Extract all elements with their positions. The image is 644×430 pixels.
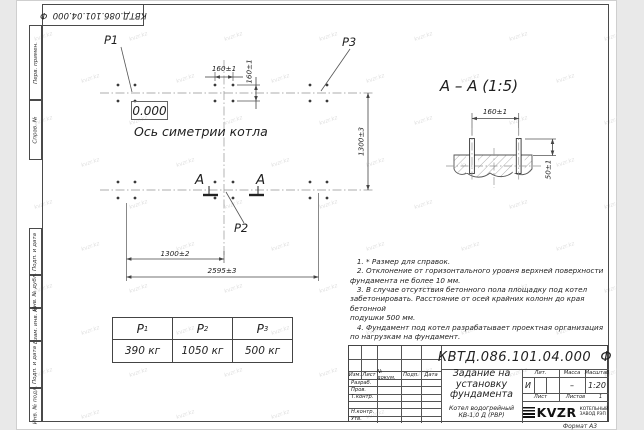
loads-table-value: 1050 кг [173, 340, 232, 362]
tb-mass-label: Масса [559, 369, 585, 377]
margin-label: Подп. и дата [33, 232, 39, 270]
dim-total-span: 2595±3 [200, 266, 244, 275]
margin-label: Взам. инв. № [33, 306, 39, 344]
margin-label: Инв. № дубл. [33, 272, 39, 310]
dim-bolt-pitch-y: 160±1 [245, 49, 254, 93]
elevation-mark: 0.000 [131, 101, 168, 120]
kvzr-logo-icon [523, 407, 535, 418]
margin-label: Подп. и дата [33, 345, 39, 383]
title-block: Изм. Лист № докум. Подп. Дата Разраб. Пр… [348, 345, 608, 422]
tb-doc-number: КВТД.086.101.04.000 Ф [441, 346, 609, 369]
load-point-label-p1: P1 [104, 33, 118, 47]
loads-table-header: P3 [233, 318, 292, 340]
tb-lit-value: И [522, 377, 534, 393]
loads-table-value: 390 кг [113, 340, 172, 362]
load-point-label-p2: P2 [234, 221, 248, 235]
tb-row-razrab: Разраб. [349, 379, 377, 386]
tb-sheets-label: Листов [566, 394, 585, 400]
dim-rows-span: 1300±3 [357, 119, 366, 163]
tb-header-list: Лист [361, 371, 377, 379]
tb-row-tkontr: Т.контр. [349, 394, 377, 401]
section-letter-right: А [256, 172, 265, 188]
corner-stamp-number: КВТД.086.101.04.000 Ф [40, 10, 147, 20]
tb-scale-label: Масштаб [585, 369, 609, 377]
dim-bolt-pitch-x: 160±1 [202, 64, 246, 73]
margin-box-podp-data-1: Подп. и дата [29, 228, 42, 275]
loads-table-header: P2 [173, 318, 232, 340]
company-name: КОТЕЛЬНЫЙ ЗАВОД РЭП [580, 407, 609, 418]
load-point-label-p3: P3 [342, 35, 356, 49]
dim-section-protrusion: 50±1 [544, 147, 553, 191]
tb-row-blank [349, 401, 377, 408]
tb-scale-value: 1:20 [585, 377, 609, 393]
tb-row-prov: Пров. [349, 386, 377, 393]
margin-label: Инв. № подл. [33, 386, 39, 425]
tb-sheets-value: 1 [599, 394, 602, 400]
section-letter-left: А [195, 172, 204, 188]
tb-sheets-cell: Листов 1 [559, 393, 609, 401]
dim-half-span: 1300±2 [153, 249, 197, 258]
loads-table: P1 390 кг P2 1050 кг P3 500 кг [112, 317, 293, 363]
tb-product-name: Котел водогрейный КВ-1,0 Д (РВР) [441, 401, 522, 423]
loads-table-value: 500 кг [233, 340, 292, 362]
corner-stamp: КВТД.086.101.04.000 Ф [42, 4, 144, 26]
format-note: Формат А3 [540, 423, 620, 430]
loads-table-col: P3 500 кг [233, 318, 292, 362]
margin-box-perv-primen: Перв. примен. [29, 25, 42, 100]
loads-table-col: P2 1050 кг [173, 318, 233, 362]
drawing-sheet-view: kvzr.kzkvzr.kzkvzr.kzkvzr.kzkvzr.kzkvzr.… [0, 0, 644, 430]
margin-box-sprav-no: Справ. № [29, 100, 42, 160]
tb-header-date: Дата [421, 371, 441, 379]
dim-section-bolt-pitch: 160±1 [473, 107, 517, 116]
tb-row-utv: Утв. [349, 416, 377, 423]
margin-box-vzam-inv: Взам. инв. № [29, 308, 42, 341]
margin-label: Справ. № [33, 116, 39, 143]
tb-mass-value: – [559, 377, 585, 393]
tb-lit-label: Лит. [522, 369, 559, 377]
tb-drawing-title: Задание на установку фундамента [441, 369, 522, 401]
tb-header-doc: № докум. [377, 371, 401, 379]
loads-table-header: P1 [113, 318, 172, 340]
margin-box-podp-data-2: Подп. и дата [29, 341, 42, 388]
tb-sheet-label: Лист [522, 393, 559, 401]
margin-box-inv-podl: Инв. № подл. [29, 388, 42, 422]
tb-header-sign: Подп. [401, 371, 421, 379]
margin-label: Перв. примен. [33, 42, 39, 84]
margin-box-inv-dubl: Инв. № дубл. [29, 275, 42, 308]
loads-table-col: P1 390 кг [113, 318, 173, 362]
tb-header-izm: Изм. [349, 371, 361, 379]
technical-notes: 1. * Размер для справок. 2. Отклонение о… [350, 257, 618, 341]
kvzr-logo-text: KVZR [537, 405, 577, 420]
boiler-axis-caption: Ось симетрии котла [134, 124, 268, 139]
tb-row-nkontr: Н.контр. [349, 408, 377, 415]
section-title: А – А (1:5) [421, 77, 537, 95]
tb-company-cell: KVZR КОТЕЛЬНЫЙ ЗАВОД РЭП [522, 401, 609, 423]
